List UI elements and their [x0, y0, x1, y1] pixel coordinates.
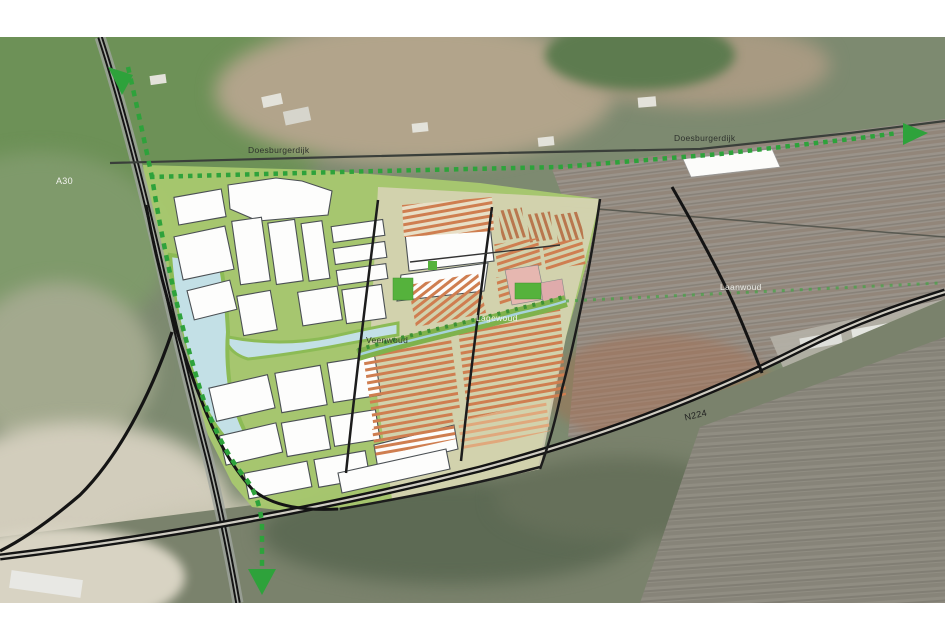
housing-rows [542, 238, 585, 269]
housing-rows [498, 207, 526, 240]
park-square [428, 261, 437, 270]
label-a30: A30 [56, 176, 73, 186]
label-doesburgerdijk-east: Doesburgerdijk [674, 133, 736, 143]
park-square [515, 283, 541, 299]
plan-block [275, 365, 327, 412]
housing-rows [554, 211, 584, 242]
label-lagewoud: Lagewoud [476, 313, 518, 323]
label-laanwoud: Laanwoud [720, 282, 762, 292]
plan-block [298, 286, 343, 326]
plan-block [237, 290, 277, 335]
plan-block [281, 415, 330, 456]
map-canvas: A30 Doesburgerdijk Doesburgerdijk N224 V… [0, 37, 945, 603]
screenshot-frame: A30 Doesburgerdijk Doesburgerdijk N224 V… [0, 0, 945, 639]
park-square [393, 278, 413, 300]
label-veenwoud: Veenwoud [366, 335, 408, 345]
housing-rows [526, 211, 554, 242]
map-image: A30 Doesburgerdijk Doesburgerdijk N224 V… [0, 37, 945, 603]
label-doesburgerdijk-west: Doesburgerdijk [248, 145, 310, 155]
